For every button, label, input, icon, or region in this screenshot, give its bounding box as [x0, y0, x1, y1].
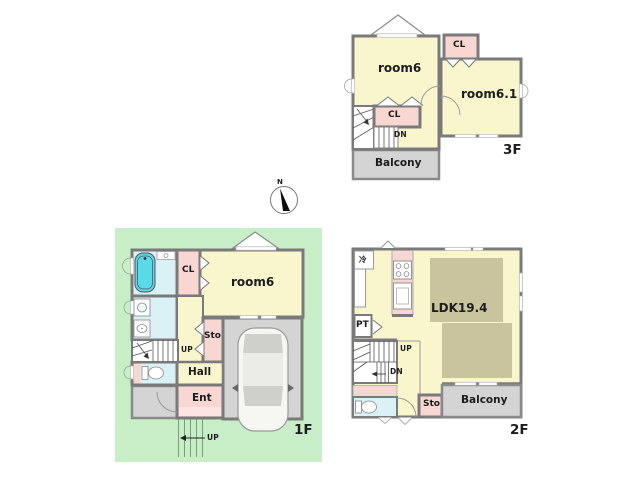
floor-plan-page: room6 CL room6.1 CL DN Balcony 3F N CL r… — [0, 0, 640, 480]
room-label-2f-sto: Sto — [423, 400, 440, 409]
entrance-step-1f — [179, 407, 221, 416]
room-label-2f-balcony: Balcony — [461, 395, 507, 406]
room-label-1f-hall: Hall — [188, 367, 211, 378]
floor-plan-1f — [115, 228, 322, 462]
rug-2-2f — [442, 323, 512, 378]
room-label-1f-ent: Ent — [192, 393, 212, 404]
toilet-icon-1f — [142, 367, 164, 380]
room-label-3f-balcony: Balcony — [375, 158, 421, 169]
washing-machine-icon — [134, 299, 150, 316]
kitchen-counter-2f — [355, 269, 366, 307]
room-label-3f-cl-top: CL — [453, 41, 465, 50]
compass-icon — [271, 187, 298, 214]
compass-north-label: N — [277, 179, 283, 186]
floor-tag-3f: 3F — [503, 144, 522, 158]
porch-1f — [132, 386, 177, 418]
stairs-1f — [132, 340, 178, 362]
room-label-1f-room6: room6 — [231, 276, 274, 288]
sink-icon — [394, 283, 412, 309]
stove-icon — [394, 261, 412, 279]
floor-tag-1f: 1F — [294, 424, 313, 438]
stair-label-2f-up: UP — [400, 345, 412, 353]
floor-tag-2f: 2F — [510, 424, 529, 438]
floor-plan-drawing — [0, 0, 640, 480]
stairs-3f — [353, 106, 374, 149]
wash-counter-2f — [353, 386, 397, 397]
room-label-1f-sto: Sto — [204, 332, 221, 341]
room-label-3f-room6: room6 — [378, 62, 421, 74]
room-label-3f-cl: CL — [388, 111, 400, 120]
stair-label-3f-dn: DN — [394, 131, 407, 139]
washbasin-icon — [134, 320, 150, 337]
bathtub-icon — [135, 253, 155, 292]
stair-label-1f-up: UP — [181, 346, 193, 354]
roof-peak-mark-2f — [381, 241, 395, 248]
room-label-3f-room6-1: room6.1 — [461, 88, 517, 100]
exterior-door-marks-2f — [378, 418, 412, 425]
bath-counter-icon — [157, 252, 175, 260]
room-label-1f-cl: CL — [182, 266, 194, 275]
car-icon — [232, 328, 294, 431]
toilet-counter-1f — [134, 364, 141, 384]
room-label-2f-ldk: LDK19.4 — [431, 302, 488, 314]
stairs-2f — [353, 341, 397, 383]
room-label-2f-pt: PT — [356, 321, 369, 330]
stair-label-2f-dn: DN — [390, 368, 403, 376]
label-2f-refrigerator: 冷 — [359, 256, 367, 264]
roof-outline-3f — [371, 15, 425, 35]
entry-label-1f-up: UP — [207, 434, 219, 442]
toilet-icon-2f — [356, 401, 377, 413]
